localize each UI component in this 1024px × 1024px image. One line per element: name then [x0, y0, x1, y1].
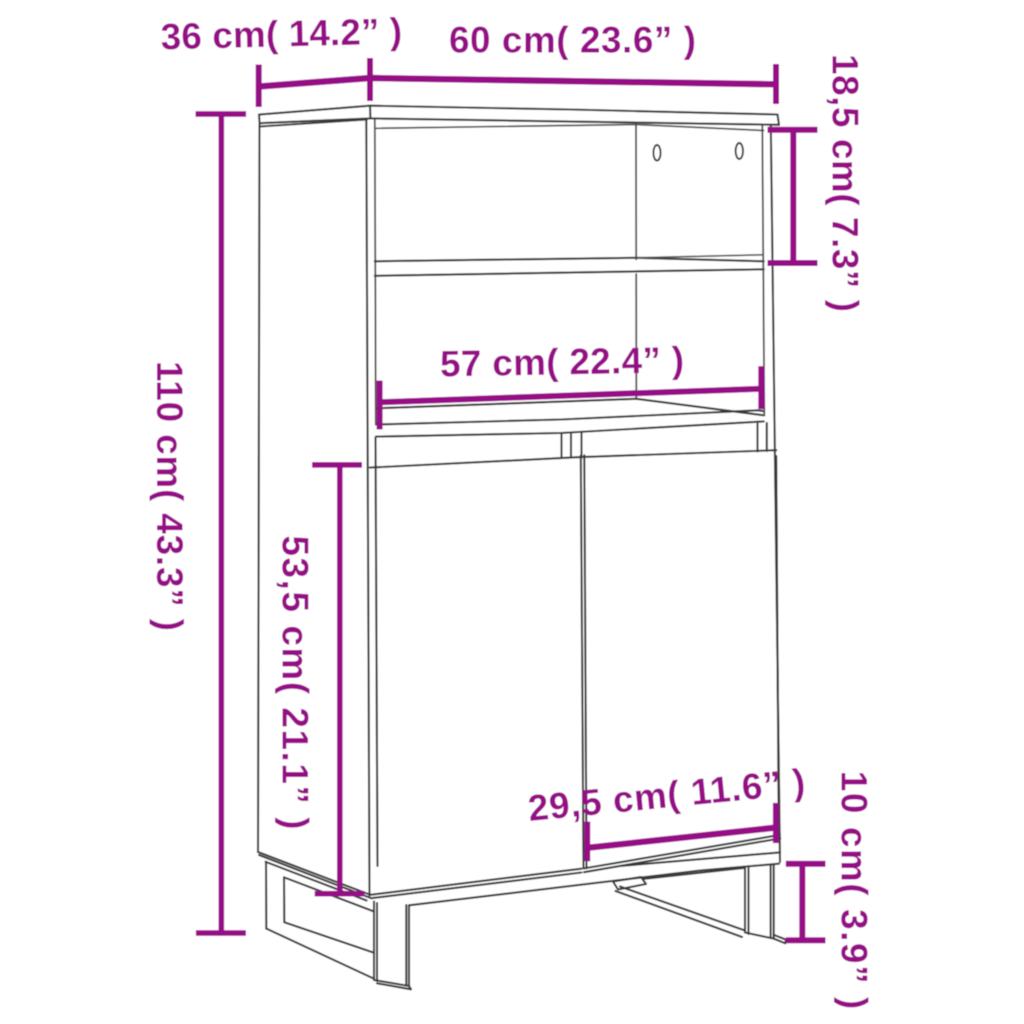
svg-text:36 cm( 14.2” ): 36 cm( 14.2” ) — [160, 11, 402, 58]
svg-text:57 cm( 22.4” ): 57 cm( 22.4” ) — [440, 339, 685, 384]
svg-text:18,5 cm( 7.3” ): 18,5 cm( 7.3” ) — [825, 54, 866, 312]
svg-text:110 cm( 43.3” ): 110 cm( 43.3” ) — [149, 361, 190, 631]
svg-text:10 cm( 3.9” ): 10 cm( 3.9” ) — [834, 771, 875, 1010]
svg-text:60 cm( 23.6” ): 60 cm( 23.6” ) — [449, 20, 696, 61]
svg-text:53,5 cm( 21.1” ): 53,5 cm( 21.1” ) — [275, 536, 316, 830]
